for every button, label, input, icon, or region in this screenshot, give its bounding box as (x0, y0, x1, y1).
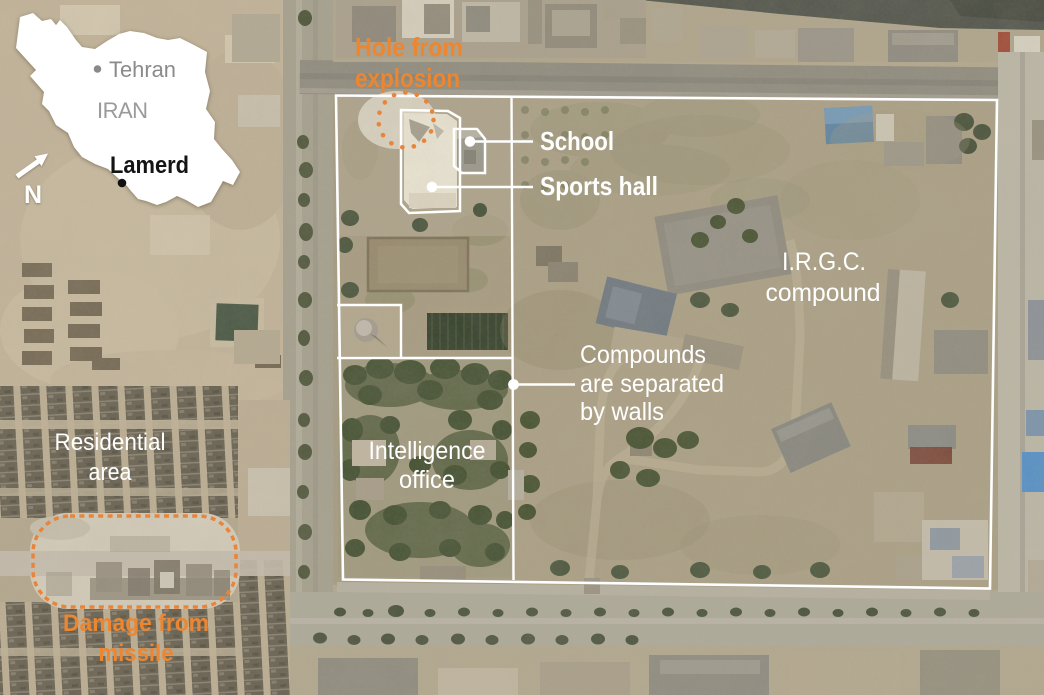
svg-text:Hole from: Hole from (355, 32, 463, 62)
svg-text:by walls: by walls (580, 398, 664, 426)
svg-text:area: area (89, 459, 133, 486)
svg-text:School: School (540, 126, 614, 156)
svg-text:Intelligence: Intelligence (369, 437, 486, 465)
svg-text:Sports hall: Sports hall (540, 171, 658, 201)
svg-text:I.R.G.C.: I.R.G.C. (782, 248, 866, 276)
svg-text:office: office (399, 466, 455, 494)
svg-text:Compounds: Compounds (580, 341, 706, 369)
svg-text:Residential: Residential (55, 429, 166, 456)
svg-text:Damage from: Damage from (63, 610, 209, 637)
svg-text:explosion: explosion (355, 63, 460, 93)
svg-text:Lamerd: Lamerd (110, 152, 189, 179)
svg-text:missile: missile (99, 640, 174, 667)
svg-text:Tehran: Tehran (109, 57, 176, 82)
svg-text:IRAN: IRAN (97, 98, 148, 123)
svg-text:N: N (24, 181, 42, 209)
svg-text:are separated: are separated (580, 370, 724, 398)
svg-text:compound: compound (766, 279, 881, 307)
